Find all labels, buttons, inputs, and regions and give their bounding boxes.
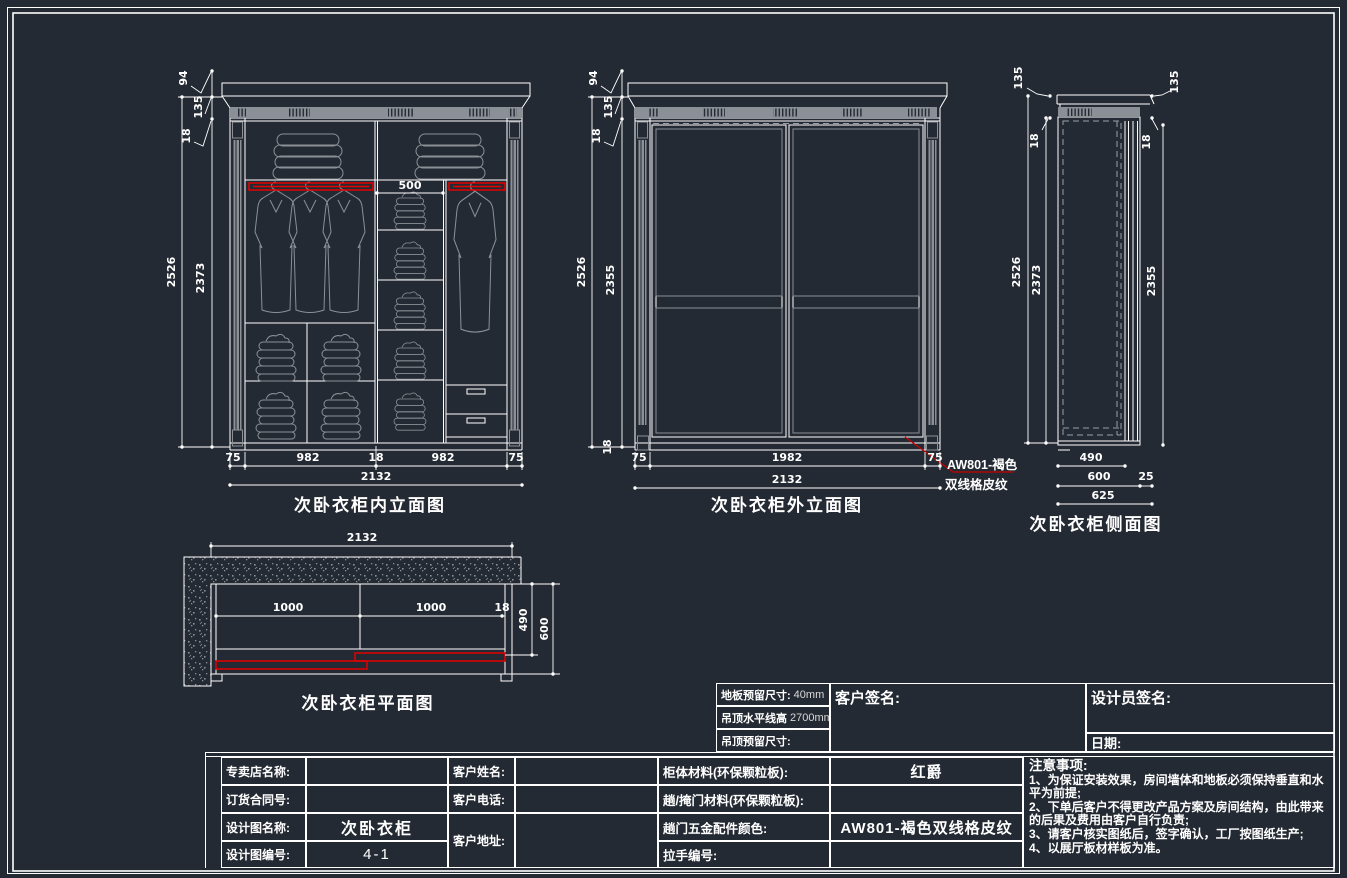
handle-no-value: [830, 841, 1023, 868]
interior-elevation-drawing: 94 135 18 2526 2373 500 75 982 18 982: [165, 69, 530, 515]
svg-text:18: 18: [494, 601, 509, 614]
customer-name-value: [515, 757, 658, 785]
sliding-door-panels: [656, 129, 919, 433]
exterior-elevation-title: 次卧衣柜外立面图: [711, 495, 863, 515]
door-material-label: 趟/掩门材料(环保颗粒板):: [658, 785, 830, 813]
svg-text:135: 135: [1012, 67, 1025, 90]
customer-address-label: 客户地址:: [448, 813, 515, 868]
svg-text:1982: 1982: [772, 451, 803, 464]
exterior-dimensions: 94 135 18 2526 2355 18 75 1982 75 2132: [575, 69, 943, 489]
customer-name-label: 客户姓名:: [448, 757, 515, 785]
notes-heading: 注意事项:: [1029, 759, 1329, 773]
wall-hatch: [184, 557, 521, 584]
customer-phone-value: [515, 785, 658, 813]
cad-drawing-sheet: 94 135 18 2526 2373 500 75 982 18 982: [0, 0, 1347, 878]
svg-text:1000: 1000: [273, 601, 304, 614]
svg-text:135: 135: [192, 96, 205, 119]
contract-no-value: [306, 785, 448, 813]
titleblock-left-edge: [205, 752, 206, 868]
svg-text:2526: 2526: [1010, 256, 1023, 287]
side-dimensions: 135 18 2526 2373 135 18 2355 490 600: [1010, 67, 1181, 506]
svg-text:2373: 2373: [1030, 265, 1043, 296]
interior-elevation-title: 次卧衣柜内立面图: [294, 495, 446, 515]
svg-text:25: 25: [1138, 470, 1153, 483]
customer-phone-label: 客户电话:: [448, 785, 515, 813]
svg-text:75: 75: [631, 451, 646, 464]
customer-signature-box: 客户签名:: [830, 683, 1086, 752]
side-view-drawing: 135 18 2526 2373 135 18 2355 490 600: [1010, 67, 1181, 534]
svg-text:490: 490: [1080, 451, 1103, 464]
door-material-value: [830, 785, 1023, 813]
drawing-name-value: 次卧衣柜: [306, 813, 448, 841]
svg-text:2132: 2132: [347, 531, 378, 544]
hardware-color-value: AW801-褐色双线格皮纹: [830, 813, 1023, 841]
note-item: 1、为保证安装效果，房间墙体和地板必须保持垂直和水平为前提;: [1029, 774, 1329, 801]
svg-text:2373: 2373: [194, 263, 207, 294]
svg-text:2355: 2355: [604, 265, 617, 296]
note-item: 3、请客户核实图纸后，签字确认，工厂按图纸生产;: [1029, 828, 1329, 842]
svg-text:2526: 2526: [165, 256, 178, 287]
svg-text:135: 135: [1168, 71, 1181, 94]
svg-text:AW801-褐色: AW801-褐色: [947, 457, 1018, 472]
svg-text:600: 600: [538, 617, 551, 640]
plan-view-drawing: 2132 1000 1000 18 490 600 次卧衣柜平面图: [184, 531, 560, 713]
contract-no-label: 订货合同号:: [221, 785, 306, 813]
pilaster-details: [638, 122, 938, 450]
store-name-label: 专卖店名称:: [221, 757, 306, 785]
designer-signature-box: 设计员签名:: [1086, 683, 1335, 733]
material-leader: AW801-褐色 双线格皮纹: [905, 437, 1018, 492]
hardware-color-label: 趟门五金配件颜色:: [658, 813, 830, 841]
svg-text:18: 18: [601, 439, 614, 454]
ceiling-height-row: 吊顶水平线高 2700mm: [716, 706, 830, 729]
cabinet-material-value: 红爵: [830, 757, 1023, 785]
svg-text:1000: 1000: [416, 601, 447, 614]
plan-view-title: 次卧衣柜平面图: [302, 693, 435, 713]
date-box: 日期:: [1086, 733, 1335, 752]
svg-text:18: 18: [1140, 134, 1153, 149]
door-tracks: [216, 653, 505, 669]
svg-text:2132: 2132: [361, 470, 392, 483]
exterior-elevation-drawing: AW801-褐色 双线格皮纹 94 135 18 2526 2355 18: [575, 69, 1018, 515]
cabinet-material-label: 柜体材料(环保颗粒板):: [658, 757, 830, 785]
hidden-lines: [1063, 121, 1121, 435]
side-view-title: 次卧衣柜侧面图: [1030, 514, 1163, 534]
svg-text:18: 18: [368, 451, 383, 464]
notes-box: 注意事项: 1、为保证安装效果，房间墙体和地板必须保持垂直和水平为前提; 2、下…: [1023, 756, 1335, 868]
svg-text:75: 75: [927, 451, 942, 464]
svg-text:18: 18: [1028, 133, 1041, 148]
svg-text:2132: 2132: [772, 473, 803, 486]
floor-reserve-row: 地板预留尺寸: 40mm: [716, 683, 830, 706]
wall-hatch: [184, 584, 211, 686]
drawing-name-label: 设计图名称:: [221, 813, 306, 841]
note-item: 4、以展厅板材样板为准。: [1029, 842, 1329, 856]
drawing-no-value: 4-1: [306, 841, 448, 868]
svg-text:500: 500: [399, 179, 422, 192]
svg-text:94: 94: [177, 70, 190, 86]
drawing-no-label: 设计图编号:: [221, 841, 306, 868]
svg-text:982: 982: [432, 451, 455, 464]
handle-no-label: 拉手编号:: [658, 841, 830, 868]
svg-text:625: 625: [1092, 489, 1115, 502]
svg-text:双线格皮纹: 双线格皮纹: [944, 477, 1008, 492]
svg-text:135: 135: [602, 96, 615, 119]
svg-text:75: 75: [508, 451, 523, 464]
svg-text:2526: 2526: [575, 256, 588, 287]
svg-text:490: 490: [517, 608, 530, 631]
note-item: 2、下单后客户不得更改产品方案及房间结构，由此带来的后果及费用由客户自行负责;: [1029, 801, 1329, 828]
store-name-value: [306, 757, 448, 785]
svg-text:75: 75: [225, 451, 240, 464]
svg-text:982: 982: [297, 451, 320, 464]
svg-text:94: 94: [587, 70, 600, 86]
svg-text:600: 600: [1088, 470, 1111, 483]
titleblock-divider: [205, 752, 1335, 753]
ceiling-reserve-row: 吊顶预留尺寸:: [716, 729, 830, 752]
pilaster-details: [233, 122, 520, 446]
customer-address-value: [515, 813, 658, 868]
svg-text:2355: 2355: [1145, 266, 1158, 297]
plan-dimensions: 2132 1000 1000 18 490 600: [209, 531, 560, 676]
